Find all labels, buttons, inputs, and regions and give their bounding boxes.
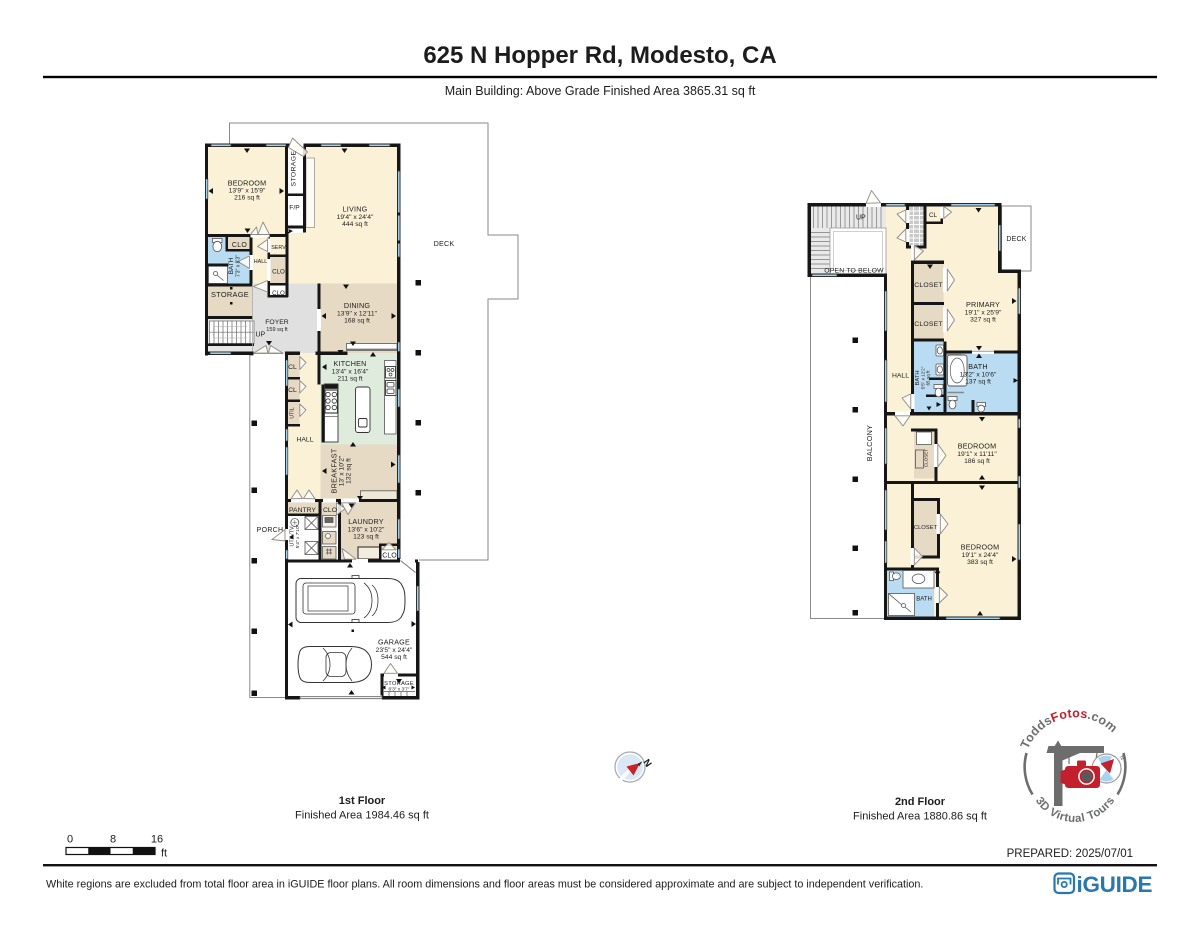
svg-text:UTIL: UTIL	[290, 407, 296, 418]
svg-text:625 N Hopper Rd, Modesto, CA: 625 N Hopper Rd, Modesto, CA	[423, 42, 776, 69]
svg-text:19'1" x 25'9": 19'1" x 25'9"	[965, 309, 1002, 316]
svg-text:7'3" x 8'3": 7'3" x 8'3"	[235, 255, 241, 277]
svg-text:6'3" x 3'7": 6'3" x 3'7"	[389, 687, 410, 693]
svg-text:PORCH: PORCH	[257, 527, 284, 534]
svg-text:CL: CL	[288, 387, 297, 394]
svg-text:White regions are excluded fro: White regions are excluded from total fl…	[46, 879, 923, 891]
svg-text:16: 16	[151, 834, 163, 846]
svg-text:327 sq ft: 327 sq ft	[970, 316, 996, 323]
svg-text:PRIMARY: PRIMARY	[966, 300, 1000, 309]
svg-text:LIVING: LIVING	[343, 205, 368, 214]
svg-text:FOYER: FOYER	[265, 319, 289, 326]
svg-text:13'4" x 16'4": 13'4" x 16'4"	[332, 368, 369, 375]
svg-text:168 sq ft: 168 sq ft	[344, 317, 370, 324]
svg-text:KITCHEN: KITCHEN	[334, 359, 367, 368]
svg-text:PREPARED: 2025/07/01: PREPARED: 2025/07/01	[1007, 848, 1133, 860]
svg-text:186 sq ft: 186 sq ft	[964, 458, 990, 465]
svg-text:123 sq ft: 123 sq ft	[353, 533, 379, 540]
svg-text:CL: CL	[929, 212, 938, 219]
svg-text:ft: ft	[161, 848, 167, 860]
svg-text:132 sq ft: 132 sq ft	[346, 458, 353, 484]
svg-text:BALCONY: BALCONY	[865, 425, 874, 461]
svg-text:BEDROOM: BEDROOM	[958, 442, 997, 451]
svg-text:13'9" x 12'11": 13'9" x 12'11"	[337, 310, 378, 317]
svg-text:13' x 10'2": 13' x 10'2"	[339, 455, 346, 486]
svg-text:65 sq ft: 65 sq ft	[926, 370, 931, 386]
svg-text:Main Building: Above Grade Fin: Main Building: Above Grade Finished Area…	[445, 84, 756, 98]
svg-text:0: 0	[67, 834, 73, 846]
svg-text:STORAGE: STORAGE	[291, 150, 298, 186]
svg-text:BEDROOM: BEDROOM	[961, 543, 1000, 552]
svg-text:OPEN TO BELOW: OPEN TO BELOW	[824, 267, 884, 274]
svg-text:GARAGE: GARAGE	[378, 638, 410, 647]
svg-text:CLO: CLO	[272, 290, 285, 297]
svg-text:Finished Area 1880.86 sq ft: Finished Area 1880.86 sq ft	[853, 811, 987, 823]
svg-text:UP: UP	[856, 215, 866, 222]
svg-text:CLOSET: CLOSET	[914, 321, 942, 328]
svg-text:CLOSET: CLOSET	[924, 449, 929, 468]
svg-text:1st Floor: 1st Floor	[339, 795, 386, 807]
svg-text:8: 8	[110, 834, 116, 846]
svg-text:BATH: BATH	[968, 362, 987, 371]
svg-text:DINING: DINING	[344, 301, 371, 310]
svg-text:BATH: BATH	[916, 597, 932, 603]
svg-text:HALL: HALL	[254, 259, 268, 265]
svg-text:CLO: CLO	[272, 269, 285, 276]
svg-text:CL: CL	[288, 364, 297, 371]
svg-text:2nd Floor: 2nd Floor	[895, 796, 946, 808]
svg-text:BATH: BATH	[228, 257, 235, 274]
svg-text:211 sq ft: 211 sq ft	[337, 375, 362, 382]
svg-text:444 sq ft: 444 sq ft	[342, 221, 368, 228]
svg-text:UP: UP	[256, 332, 266, 339]
svg-text:137 sq ft: 137 sq ft	[965, 378, 991, 385]
svg-text:LAUNDRY: LAUNDRY	[348, 517, 384, 526]
svg-text:159 sq ft: 159 sq ft	[266, 327, 288, 333]
svg-text:13'6" x 10'2": 13'6" x 10'2"	[348, 526, 385, 533]
svg-text:Finished Area 1984.46 sq ft: Finished Area 1984.46 sq ft	[295, 810, 429, 822]
svg-text:iGUIDE: iGUIDE	[1077, 872, 1153, 897]
svg-text:DECK: DECK	[434, 239, 455, 248]
svg-text:HALL: HALL	[892, 373, 909, 380]
svg-text:216 sq ft: 216 sq ft	[234, 194, 260, 201]
svg-text:19'4" x 24'4": 19'4" x 24'4"	[337, 214, 374, 221]
svg-text:CLO: CLO	[382, 553, 397, 560]
svg-text:F/P: F/P	[289, 205, 300, 212]
svg-text:CLO: CLO	[232, 242, 248, 249]
svg-text:13'9" x 15'9": 13'9" x 15'9"	[229, 187, 266, 194]
svg-text:HALL: HALL	[296, 437, 313, 444]
svg-text:13'2" x 10'6": 13'2" x 10'6"	[960, 371, 997, 378]
svg-text:BREAKFAST: BREAKFAST	[330, 448, 339, 493]
svg-text:BEDROOM: BEDROOM	[228, 178, 267, 187]
svg-text:383 sq ft: 383 sq ft	[967, 559, 993, 566]
svg-text:19'1" x 24'4": 19'1" x 24'4"	[962, 552, 999, 559]
svg-text:CLO: CLO	[323, 507, 337, 514]
svg-text:CLOSET: CLOSET	[914, 525, 938, 531]
svg-text:CLOSET: CLOSET	[914, 282, 942, 289]
svg-text:23'5" x 24'4": 23'5" x 24'4"	[376, 647, 413, 654]
svg-text:DECK: DECK	[1006, 236, 1026, 243]
svg-text:PANTRY: PANTRY	[289, 507, 316, 514]
svg-text:544 sq ft: 544 sq ft	[381, 654, 407, 661]
svg-text:5'4" x 7'10": 5'4" x 7'10"	[295, 524, 301, 548]
svg-text:SERV: SERV	[271, 245, 286, 251]
svg-text:19'1" x 11'11": 19'1" x 11'11"	[957, 451, 997, 458]
svg-text:STORAGE: STORAGE	[211, 290, 249, 299]
